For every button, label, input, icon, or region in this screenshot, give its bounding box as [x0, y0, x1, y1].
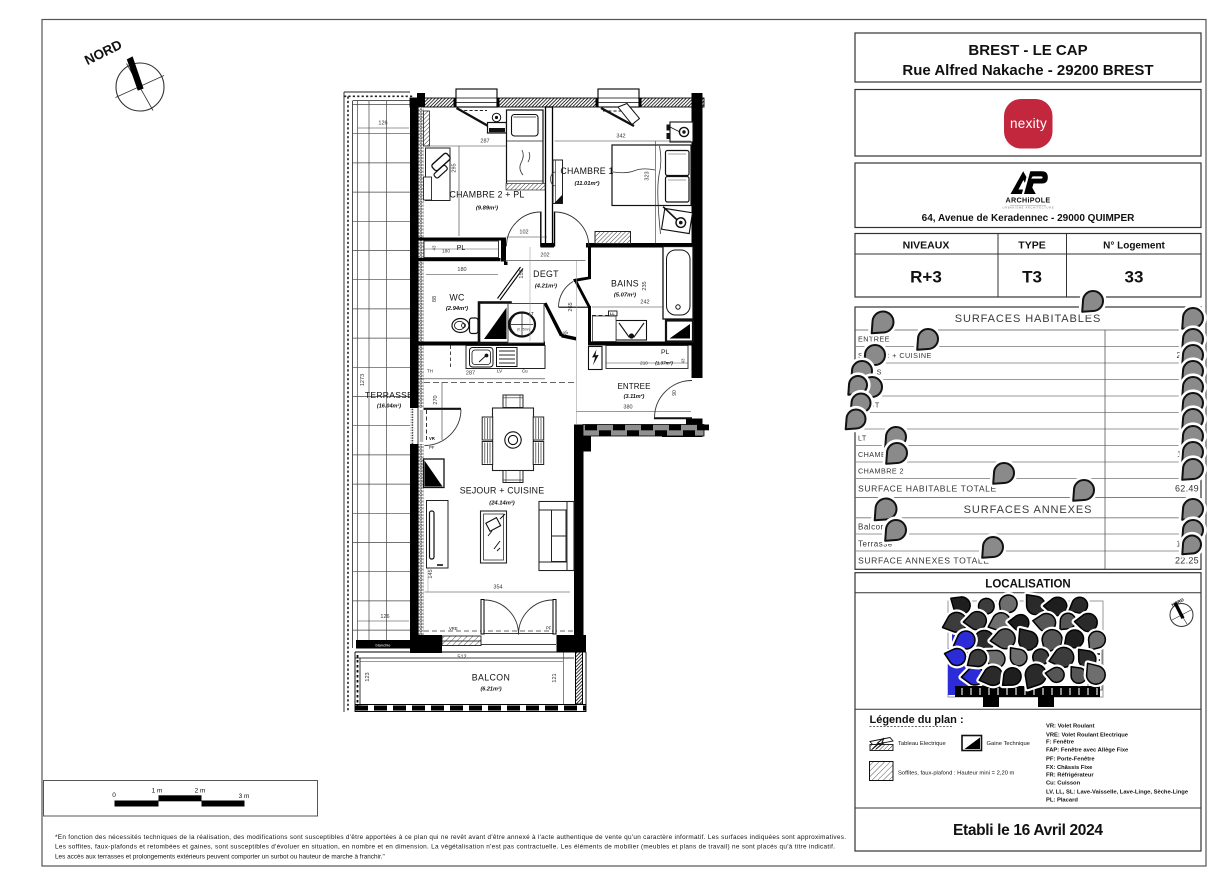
svg-text:TERRASSE: TERRASSE [365, 390, 413, 400]
svg-text:FX: Châssis Fixe: FX: Châssis Fixe [1046, 765, 1093, 771]
svg-text:CHAMBRE 1: CHAMBRE 1 [560, 166, 613, 176]
svg-text:R+3: R+3 [910, 268, 942, 287]
svg-text:PF: PF [546, 626, 552, 631]
svg-text:TYPE: TYPE [1018, 240, 1045, 252]
svg-text:DEGT: DEGT [533, 269, 559, 279]
svg-text:(1.37m²): (1.37m²) [655, 361, 673, 366]
svg-text:Cu: Cu [522, 369, 528, 374]
svg-text:PL: Placard: PL: Placard [1046, 798, 1078, 804]
svg-text:202: 202 [540, 253, 549, 259]
svg-text:PL: PL [661, 349, 670, 356]
svg-text:TH: TH [427, 369, 433, 374]
svg-text:CHAMBRE 2 + PL: CHAMBRE 2 + PL [450, 190, 525, 200]
svg-text:0: 0 [112, 792, 116, 799]
svg-text:(24.14m²): (24.14m²) [489, 500, 515, 507]
svg-text:180: 180 [442, 249, 450, 255]
svg-text:SURFACES HABITABLES: SURFACES HABITABLES [955, 313, 1102, 325]
svg-text:Soffites, faux-plafond : Haute: Soffites, faux-plafond : Hauteur mini = … [898, 771, 1015, 777]
svg-text:NIVEAUX: NIVEAUX [903, 240, 950, 252]
svg-text:ENTREE: ENTREE [617, 382, 650, 391]
svg-text:PF: PF [429, 445, 435, 450]
svg-text:Les accès aux terrasses et pro: Les accès aux terrasses et prolongements… [55, 853, 385, 860]
svg-text:(9.89m²): (9.89m²) [476, 205, 498, 212]
svg-text:VR: VR [429, 436, 435, 441]
svg-text:3 m: 3 m [239, 793, 250, 800]
svg-text:33: 33 [1125, 268, 1144, 287]
svg-text:VRE: VRE [449, 626, 458, 631]
svg-text:PL: PL [457, 245, 466, 252]
svg-text:nexity: nexity [1010, 116, 1047, 131]
svg-text:64, Avenue de Keradennec - 290: 64, Avenue de Keradennec - 29000 QUIMPER [922, 213, 1135, 224]
svg-text:*En fonction des nécessités te: *En fonction des nécessités techniques d… [55, 834, 846, 841]
svg-text:(4.21m²): (4.21m²) [535, 283, 557, 290]
svg-text:WC: WC [449, 293, 465, 303]
svg-text:Gaine Technique: Gaine Technique [987, 741, 1030, 747]
svg-text:342: 342 [616, 134, 625, 140]
svg-text:(0.75m²): (0.75m²) [517, 328, 530, 332]
svg-text:323: 323 [645, 171, 651, 180]
svg-text:295: 295 [452, 163, 458, 172]
svg-text:VRE: Volet Roulant Electrique: VRE: Volet Roulant Electrique [1046, 732, 1129, 738]
svg-text:210: 210 [640, 361, 648, 366]
svg-text:Légende du plan :: Légende du plan : [870, 714, 964, 726]
svg-text:LOCALISATION: LOCALISATION [985, 579, 1070, 591]
svg-text:126: 126 [378, 121, 387, 127]
svg-text:Les soffites, faux-plafonds et: Les soffites, faux-plafonds et retombées… [55, 844, 835, 851]
svg-text:(6.21m²): (6.21m²) [480, 686, 501, 693]
svg-text:N° Logement: N° Logement [1103, 241, 1165, 252]
svg-text:(16.04m²): (16.04m²) [377, 403, 401, 410]
svg-text:153: 153 [519, 269, 525, 278]
svg-text:145: 145 [428, 569, 434, 578]
svg-text:180: 180 [457, 267, 466, 273]
svg-text:62.49: 62.49 [1175, 484, 1199, 494]
svg-text:SURFACE ANNEXES TOTALE: SURFACE ANNEXES TOTALE [858, 556, 990, 566]
svg-text:Rue Alfred Nakache - 29200 BRE: Rue Alfred Nakache - 29200 BREST [902, 62, 1153, 79]
svg-text:126: 126 [380, 614, 389, 620]
svg-text:380: 380 [623, 405, 632, 411]
svg-text:88: 88 [432, 296, 438, 302]
svg-text:265: 265 [568, 302, 574, 311]
svg-text:ARCHiPOLE: ARCHiPOLE [1005, 196, 1050, 205]
svg-text:LT: LT [858, 434, 867, 443]
svg-text:Etabli le 16 Avril 2024: Etabli le 16 Avril 2024 [953, 822, 1103, 839]
svg-text:SEJOUR + CUISINE: SEJOUR + CUISINE [460, 486, 545, 496]
svg-text:F: Fenêtre: F: Fenêtre [1046, 739, 1075, 745]
svg-text:43: 43 [681, 358, 686, 364]
svg-text:270: 270 [433, 395, 439, 404]
svg-text:U R B A N I S M E · A R C H I: U R B A N I S M E · A R C H I T E C T U … [1003, 205, 1054, 209]
svg-text:(2.94m²): (2.94m²) [446, 305, 468, 312]
svg-text:123: 123 [365, 672, 371, 681]
svg-text:2 m: 2 m [195, 788, 206, 795]
svg-text:512: 512 [457, 655, 466, 661]
svg-text:PF: Porte-Fenêtre: PF: Porte-Fenêtre [1046, 757, 1095, 763]
svg-text:FR: Réfrigérateur: FR: Réfrigérateur [1046, 773, 1094, 779]
svg-text:BAINS: BAINS [611, 279, 639, 289]
svg-text:(11.01m²): (11.01m²) [574, 180, 599, 187]
svg-text:SURFACE HABITABLE TOTALE: SURFACE HABITABLE TOTALE [858, 484, 997, 494]
svg-text:CHAMBRE 2: CHAMBRE 2 [858, 467, 904, 476]
svg-text:102: 102 [519, 230, 528, 236]
svg-text:(5.07m²): (5.07m²) [614, 292, 636, 299]
svg-text:242: 242 [640, 300, 649, 306]
svg-text:43: 43 [432, 245, 437, 251]
svg-text:Cu: Cuisson: Cu: Cuisson [1046, 780, 1081, 786]
svg-text:90: 90 [672, 390, 678, 396]
svg-text:BREST - LE CAP: BREST - LE CAP [968, 42, 1087, 59]
svg-text:LV: LV [497, 369, 502, 374]
svg-text:235: 235 [642, 281, 648, 290]
svg-text:Tableau Electrique: Tableau Electrique [898, 741, 946, 747]
svg-text:T3: T3 [1022, 268, 1042, 287]
svg-text:blanchie: blanchie [376, 643, 392, 648]
svg-text:287: 287 [466, 371, 475, 377]
svg-text:VR: Volet Roulant: VR: Volet Roulant [1046, 723, 1095, 729]
svg-text:FAP: Fenêtre avec Allège Fixe: FAP: Fenêtre avec Allège Fixe [1046, 748, 1129, 754]
svg-text:Balcon: Balcon [858, 523, 885, 532]
svg-text:121: 121 [552, 673, 558, 682]
svg-text:354: 354 [493, 585, 502, 591]
svg-text:1 m: 1 m [152, 788, 163, 795]
svg-text:LL: LL [610, 312, 615, 316]
svg-text:(3.11m²): (3.11m²) [624, 393, 645, 400]
svg-text:1273: 1273 [360, 374, 366, 386]
svg-text:SURFACES ANNEXES: SURFACES ANNEXES [964, 504, 1093, 516]
svg-text:LV, LL, SL: Lave-Vaisselle, La: LV, LL, SL: Lave-Vaisselle, Lave-Linge, … [1046, 789, 1189, 795]
svg-text:287: 287 [480, 139, 489, 145]
svg-text:BALCON: BALCON [472, 673, 511, 683]
